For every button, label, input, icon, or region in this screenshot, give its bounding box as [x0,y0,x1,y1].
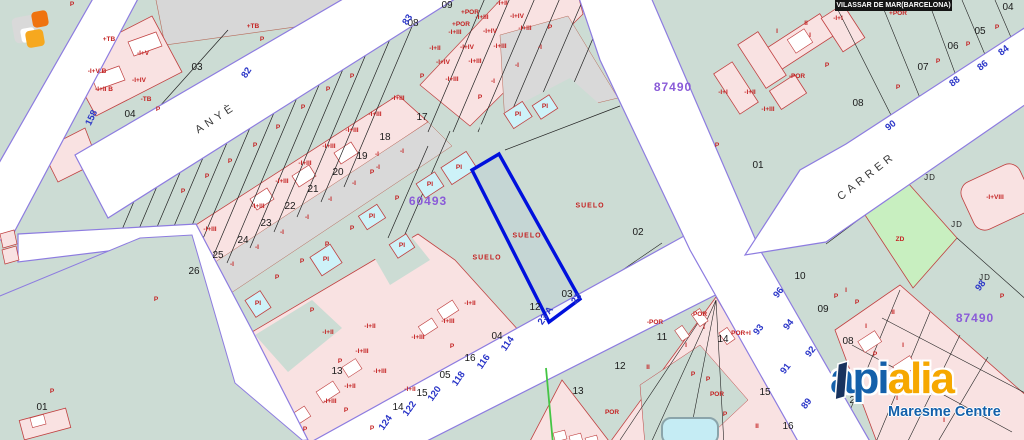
pool [662,418,718,440]
logo-door-icon [831,360,850,402]
municipality-bar: VILASSAR DE MAR(BARCELONA) [835,0,952,11]
cadastral-map-view: 0304090817181920212223242526020312041605… [0,0,1024,440]
logo-square-orange [31,10,50,29]
logo-square-amber [25,29,46,49]
apialia-logo: api alia Maresme Centre [830,360,1024,424]
logo-tagline: Maresme Centre [888,404,1001,420]
logo-text-alia: alia [888,360,953,398]
